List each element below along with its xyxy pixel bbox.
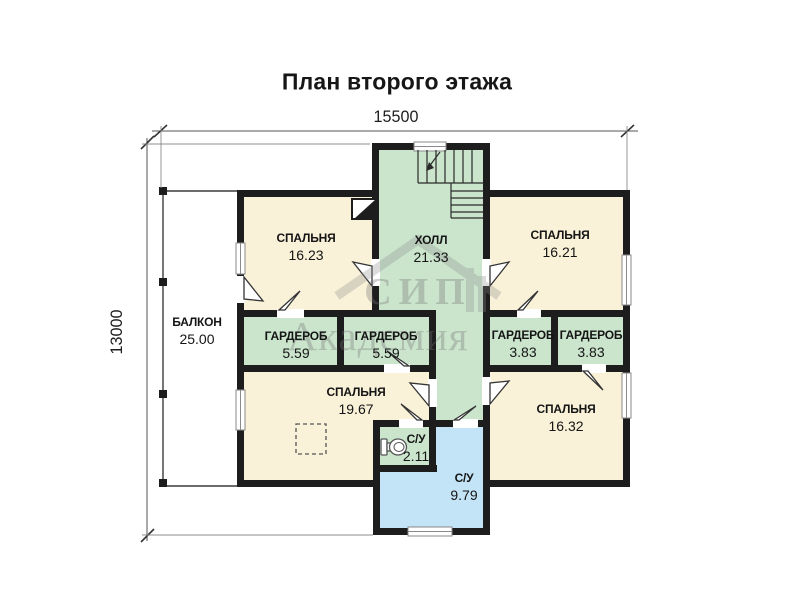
room-label-balcony: БАЛКОН 25.00 bbox=[172, 313, 222, 347]
room-label-bedroom-16-32: СПАЛЬНЯ 16.32 bbox=[536, 400, 595, 434]
vent-shaft-icon bbox=[352, 199, 376, 219]
room-label-bedroom-16-21: СПАЛЬНЯ 16.21 bbox=[530, 226, 589, 260]
room-label-wardrobe-mid: ГАРДЕРОБ 5.59 bbox=[355, 327, 418, 361]
page-title: План второго этажа bbox=[282, 69, 512, 96]
room-label-bedroom-19-67: СПАЛЬНЯ 19.67 bbox=[326, 383, 385, 417]
dimension-height-label: 13000 bbox=[107, 310, 127, 355]
floor-plan-page: СИП Академия План второго этажа 15500 13… bbox=[0, 0, 800, 600]
room-label-wardrobe-left: ГАРДЕРОБ 5.59 bbox=[265, 327, 328, 361]
dimension-width-label: 15500 bbox=[374, 107, 419, 127]
room-label-wc-small: С/У 2.11 bbox=[403, 430, 429, 464]
room-label-wardrobe-right-2: ГАРДЕРОБ 3.83 bbox=[560, 326, 623, 360]
room-label-wardrobe-right-1: ГАРДЕРОБ 3.83 bbox=[492, 326, 555, 360]
watermark-text-line1: СИП bbox=[364, 270, 472, 314]
room-label-bedroom-16-23: СПАЛЬНЯ 16.23 bbox=[276, 229, 335, 263]
room-label-hall: ХОЛЛ 21.33 bbox=[413, 231, 448, 265]
room-label-wc-large: С/У 9.79 bbox=[450, 469, 477, 503]
